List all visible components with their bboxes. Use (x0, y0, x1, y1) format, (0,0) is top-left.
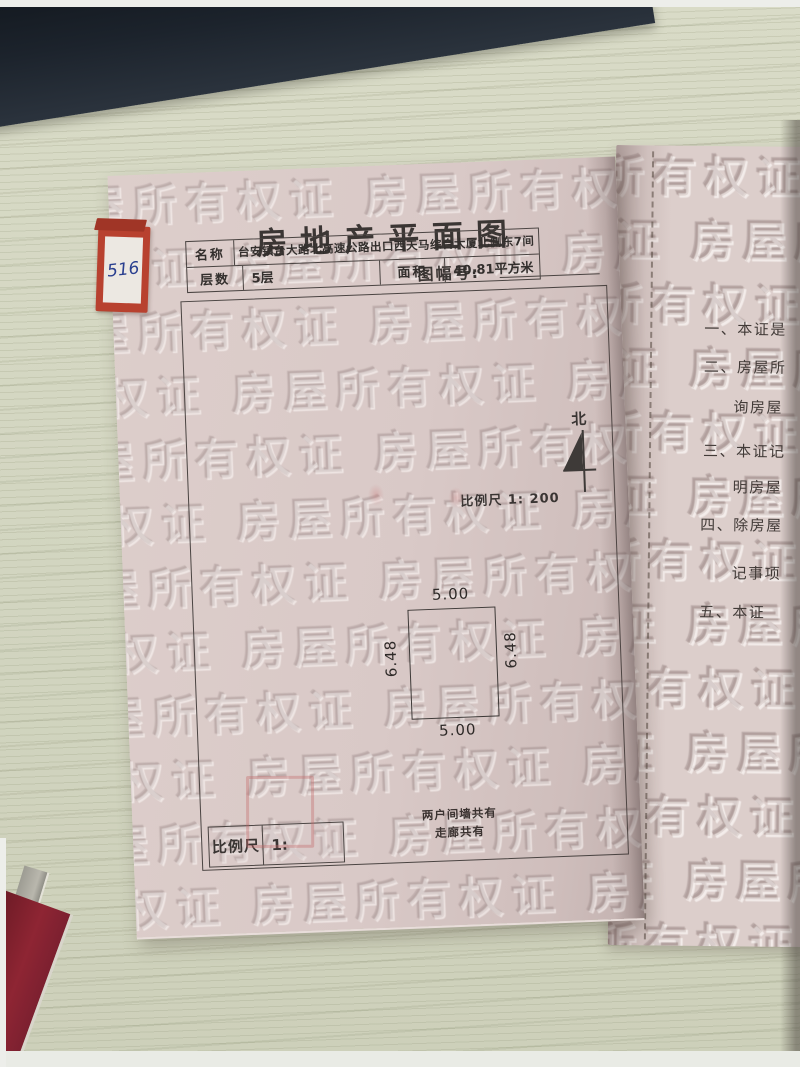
photo-edge-bottom (0, 1051, 800, 1067)
shared-ownership-note: 两户间墙共有 走廊共有 (394, 803, 525, 845)
drawing-scale-note: 比例尺 1: 200 (460, 487, 560, 510)
photo-edge-top (0, 0, 800, 7)
dimension-label-top: 5.00 (432, 584, 470, 603)
faded-red-stamp-outline (246, 776, 314, 848)
clause-fragment: 五、本证 (699, 601, 765, 623)
north-arrow-line (582, 430, 586, 492)
area-label: 面积 (379, 258, 445, 285)
north-arrow-icon (562, 432, 583, 471)
red-book-cover (0, 891, 73, 1067)
sticker-flap (94, 218, 147, 232)
dimension-label-right: 6.48 (501, 631, 520, 669)
clause-fragment: 询房屋 (733, 396, 783, 418)
red-certificate-books (0, 868, 74, 1067)
dimension-label-bottom: 5.00 (439, 720, 477, 739)
north-label: 北 (571, 408, 587, 430)
floors-value: 5层 (242, 260, 380, 290)
clause-fragment: 三、本证记 (703, 440, 786, 462)
clause-fragment: 二、房屋所 (704, 356, 787, 378)
sticker-face: 516 (103, 236, 143, 303)
property-info-table: 名称 台安镇台大路北高速公路出口西天马综合大厦北侧东7间 层数 5层 面积 40… (185, 228, 541, 294)
floors-label: 层数 (187, 265, 243, 292)
dimension-label-left: 6.48 (381, 639, 400, 677)
name-label: 名称 (186, 240, 233, 266)
clause-fragment: 明房屋 (733, 476, 783, 498)
room-outline (407, 606, 499, 719)
floor-plan-page: 房屋所有权证 房屋所有权证 房屋所有权证 房屋所有权证 房屋所有权证 房屋所有权… (108, 157, 645, 938)
area-value: 40.81平方米 (444, 254, 540, 282)
clause-fragment: 记事项 (732, 562, 782, 584)
clause-fragment: 一、本证是 (704, 318, 787, 340)
index-tab-sticker: 516 (96, 225, 151, 313)
photo-right-shadow (780, 120, 800, 1060)
clause-fragment: 四、除房屋 (700, 514, 783, 536)
photo-edge-left (0, 838, 6, 1067)
sticker-number: 516 (106, 258, 140, 281)
dark-book-edge (0, 0, 655, 143)
north-arrow-base (563, 468, 596, 471)
